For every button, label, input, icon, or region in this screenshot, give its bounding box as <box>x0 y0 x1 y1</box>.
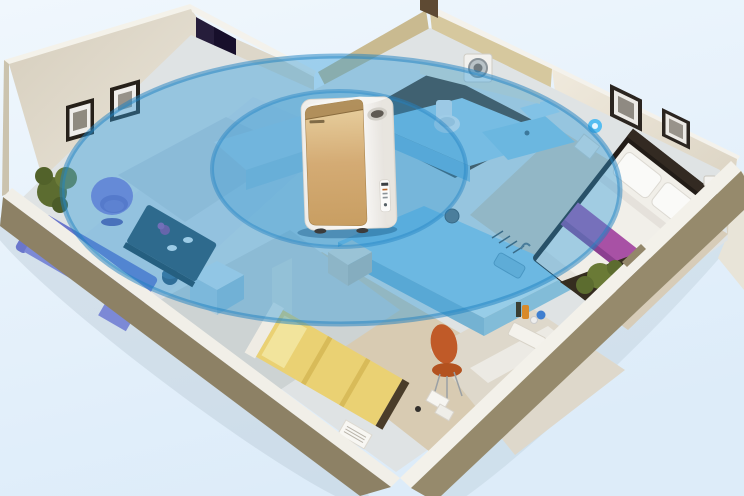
purifier-control-panel <box>380 180 391 212</box>
air-purifier <box>293 95 398 239</box>
screenshot-stage <box>0 0 744 496</box>
purifier-front-panel <box>305 99 367 227</box>
apartment-scene <box>0 0 744 496</box>
purifier-brand-mark <box>309 120 324 124</box>
